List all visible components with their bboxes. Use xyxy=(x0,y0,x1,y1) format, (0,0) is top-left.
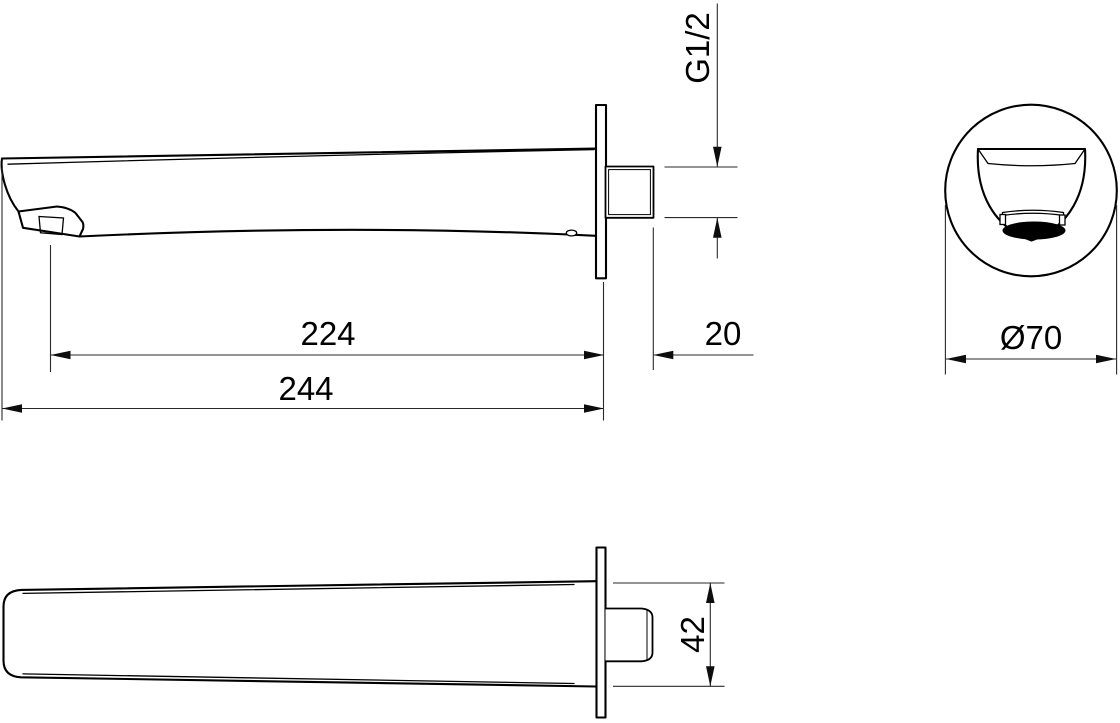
aerator-clip-left xyxy=(1000,215,1006,225)
spout-bottom-edge xyxy=(80,230,597,237)
arrowhead-g12-up xyxy=(713,218,722,238)
top-view xyxy=(4,548,653,718)
wall-flange-side xyxy=(596,105,606,278)
thread-connector-side xyxy=(606,167,654,218)
dim-label-g12: G1/2 xyxy=(679,12,716,84)
arrowhead-d70-left xyxy=(946,355,966,364)
arrowhead-244-right xyxy=(584,404,604,413)
aerator-housing xyxy=(19,207,84,237)
technical-drawing-page: 244 224 20 G1/2 xyxy=(0,0,1120,723)
arrowhead-42-up xyxy=(706,583,715,603)
dim-label-224: 224 xyxy=(300,315,355,352)
arrowhead-224-left xyxy=(51,351,71,360)
arrowhead-d70-right xyxy=(1096,355,1116,364)
dim-connector-length: 20 xyxy=(653,228,753,371)
dimension-annotations: 244 224 20 G1/2 xyxy=(2,4,1117,687)
side-view xyxy=(2,105,654,278)
dim-label-244: 244 xyxy=(278,370,333,407)
spout-top-edge xyxy=(2,149,596,159)
dim-label-d70: Ø70 xyxy=(1000,319,1062,356)
aerator-clip-right xyxy=(1060,215,1066,225)
dim-label-42: 42 xyxy=(674,616,711,653)
arrowhead-224-right xyxy=(584,351,604,360)
dim-thread-size: G1/2 xyxy=(665,4,738,259)
front-view xyxy=(945,105,1117,277)
set-screw xyxy=(566,230,576,236)
thread-connector-top-view xyxy=(606,609,653,662)
dim-overall-length: 244 xyxy=(2,168,604,421)
aerator-mesh xyxy=(1003,222,1066,240)
spout-tip-curve xyxy=(2,159,19,212)
wall-flange-top-view xyxy=(597,548,606,718)
spout-technical-drawing: 244 224 20 G1/2 xyxy=(0,0,1120,723)
arrowhead-20 xyxy=(653,351,673,360)
arrowhead-g12-down xyxy=(713,147,722,167)
dim-label-20: 20 xyxy=(705,315,742,352)
flange-circle xyxy=(945,105,1117,277)
arrowhead-244-left xyxy=(2,404,22,413)
arrowhead-42-down xyxy=(706,666,715,686)
body-outline-top-view xyxy=(4,581,597,686)
